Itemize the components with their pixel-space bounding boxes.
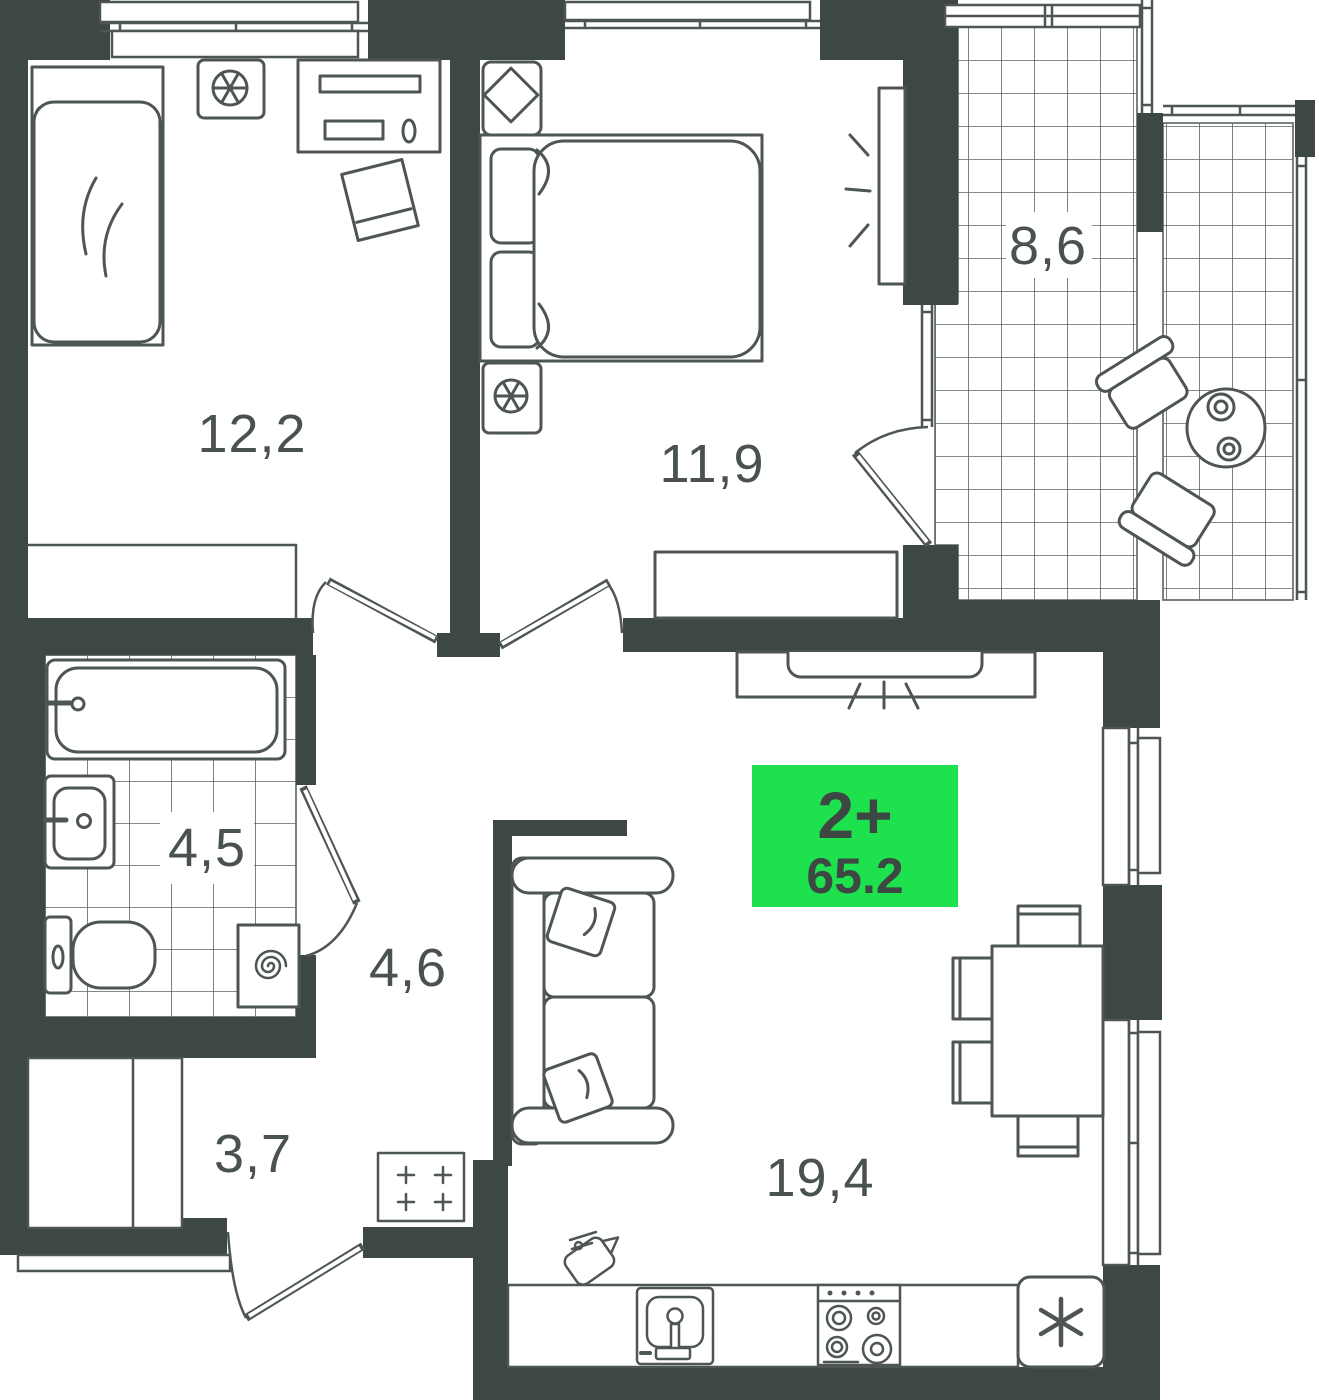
toilet [45,917,155,993]
apartment-badge: 2+ 65.2 [752,765,958,907]
picture-frame [342,160,419,241]
closet-bedroom-2 [655,552,897,618]
door-bathroom [303,787,357,956]
tv-bedroom-2 [846,88,905,284]
room-label-entry-hall: 3,7 [214,1124,292,1184]
electric-stove-panel [378,1153,464,1221]
door-bedroom-2 [500,582,622,646]
tv-stand [737,652,1035,708]
bathroom-sink [45,776,114,868]
nightstand-2 [483,363,541,433]
single-bed [32,67,163,345]
kitchen-counter [508,1222,1018,1367]
hall-wardrobe [28,1058,182,1228]
door-entrance [228,1232,363,1318]
room-label-bedroom-1: 12,2 [197,404,306,464]
dining-set [953,906,1103,1156]
balcony-table [1187,389,1265,467]
room-label-balcony: 8,6 [1009,216,1087,276]
room-label-kitchen-living: 19,4 [765,1148,874,1208]
door-bedroom-1 [313,581,437,640]
room-label-bedroom-2: 11,9 [659,434,764,494]
kitchen-sink [637,1288,713,1364]
bathtub [47,660,285,759]
nightstand [198,60,264,118]
badge-rooms-count: 2+ [817,778,892,852]
double-bed [480,135,762,361]
kettle-icon [558,1222,629,1288]
fridge [1018,1277,1104,1367]
closet-bedroom-1 [28,545,296,618]
badge-area-value: 65.2 [806,848,903,904]
door-balcony [855,427,929,545]
desk [298,60,440,152]
dining-table [992,946,1103,1116]
floor-plan: 12,2 11,9 8,6 4,5 4,6 3,7 19,4 2+ 65.2 [0,0,1319,1400]
stove [818,1285,900,1365]
armchair-small [483,62,541,135]
sofa [512,858,673,1144]
washing-machine [238,925,299,1007]
room-label-bathroom: 4,5 [168,818,246,878]
room-label-hallway: 4,6 [369,938,447,998]
